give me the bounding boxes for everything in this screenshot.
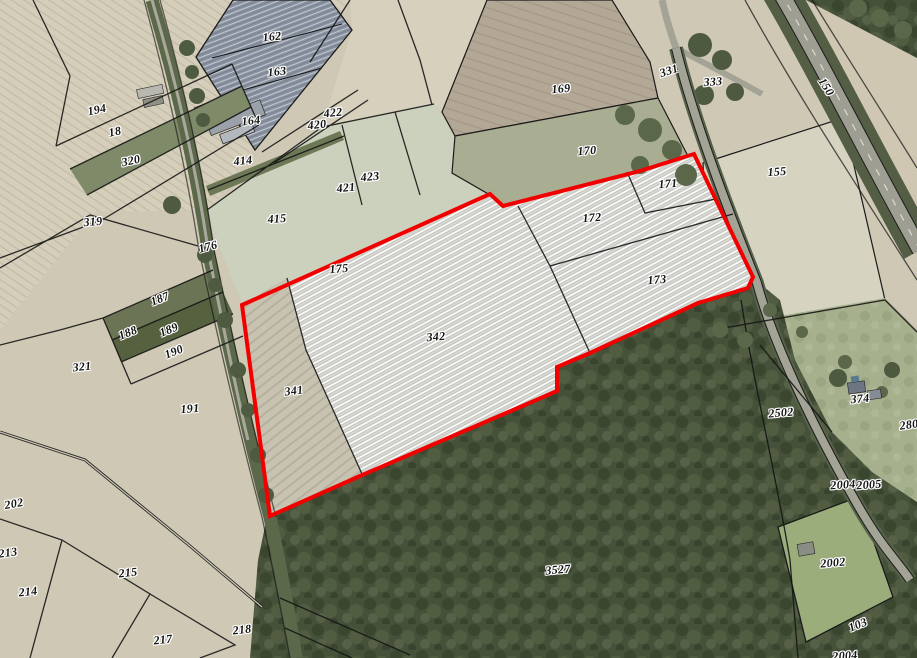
parcel-label-191[interactable]: 191 xyxy=(180,401,200,418)
parcel-label-341[interactable]: 341 xyxy=(284,382,305,399)
parcel-label-2004[interactable]: 2004 xyxy=(832,648,858,658)
parcel-label-171[interactable]: 171 xyxy=(658,176,678,193)
parcel-label-18[interactable]: 18 xyxy=(107,123,122,140)
parcel-label-2502[interactable]: 2502 xyxy=(768,404,794,421)
parcel-label-215[interactable]: 215 xyxy=(118,565,138,582)
parcel-label-218[interactable]: 218 xyxy=(232,622,252,639)
parcel-label-164[interactable]: 164 xyxy=(241,113,261,130)
parcel-label-170[interactable]: 170 xyxy=(577,143,597,160)
parcel-label-2004[interactable]: 2004 xyxy=(830,477,856,494)
map-canvas[interactable]: 1621631641941832041442242042342141516933… xyxy=(0,0,917,658)
house-2002 xyxy=(797,542,815,557)
parcel-label-420[interactable]: 420 xyxy=(307,117,327,134)
parcel-label-421[interactable]: 421 xyxy=(336,180,356,197)
parcel-label-321[interactable]: 321 xyxy=(72,359,92,376)
parcel-label-213[interactable]: 213 xyxy=(0,544,18,561)
parcel-label-3527[interactable]: 3527 xyxy=(545,561,571,578)
parcel-label-342[interactable]: 342 xyxy=(426,329,446,346)
parcel-label-2002[interactable]: 2002 xyxy=(820,554,846,571)
parcel-label-319[interactable]: 319 xyxy=(83,214,103,231)
parcel-label-173[interactable]: 173 xyxy=(647,272,667,289)
parcel-label-280[interactable]: 280 xyxy=(899,416,917,433)
parcel-label-333[interactable]: 333 xyxy=(703,74,723,90)
parcel-label-175[interactable]: 175 xyxy=(329,261,349,278)
parcel-label-423[interactable]: 423 xyxy=(360,169,380,186)
parcel-label-163[interactable]: 163 xyxy=(267,64,287,81)
parcel-label-214[interactable]: 214 xyxy=(18,584,38,601)
parcel-label-169[interactable]: 169 xyxy=(551,81,571,98)
parcel-label-374[interactable]: 374 xyxy=(850,391,870,408)
aerial-map-graphic xyxy=(0,0,917,658)
parcel-label-415[interactable]: 415 xyxy=(267,211,287,227)
parcel-label-162[interactable]: 162 xyxy=(262,29,282,46)
parcel-label-155[interactable]: 155 xyxy=(767,164,787,180)
parcel-label-414[interactable]: 414 xyxy=(233,153,253,170)
parcel-label-2005[interactable]: 2005 xyxy=(856,477,882,494)
parcel-label-172[interactable]: 172 xyxy=(582,210,602,227)
parcel-label-217[interactable]: 217 xyxy=(153,632,173,649)
